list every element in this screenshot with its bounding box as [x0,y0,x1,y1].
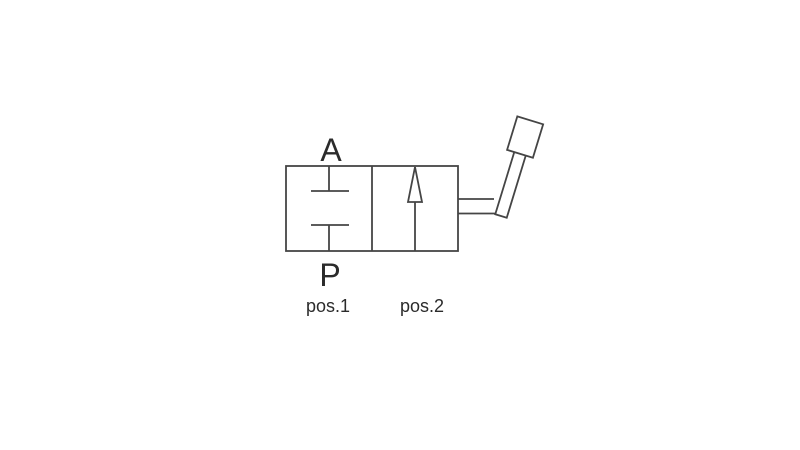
port-a-label: A [320,132,342,168]
pos1-label: pos.1 [306,296,350,316]
hand-lever-symbol [488,116,543,220]
valve-schematic-svg: A P pos.1 pos.2 [0,0,800,450]
valve-body [286,166,458,251]
port-p-label: P [319,257,340,293]
lever-shaft [495,151,526,218]
valve-schematic-diagram: A P pos.1 pos.2 [0,0,800,450]
lever-knob [507,116,543,157]
pos2-label: pos.2 [400,296,444,316]
